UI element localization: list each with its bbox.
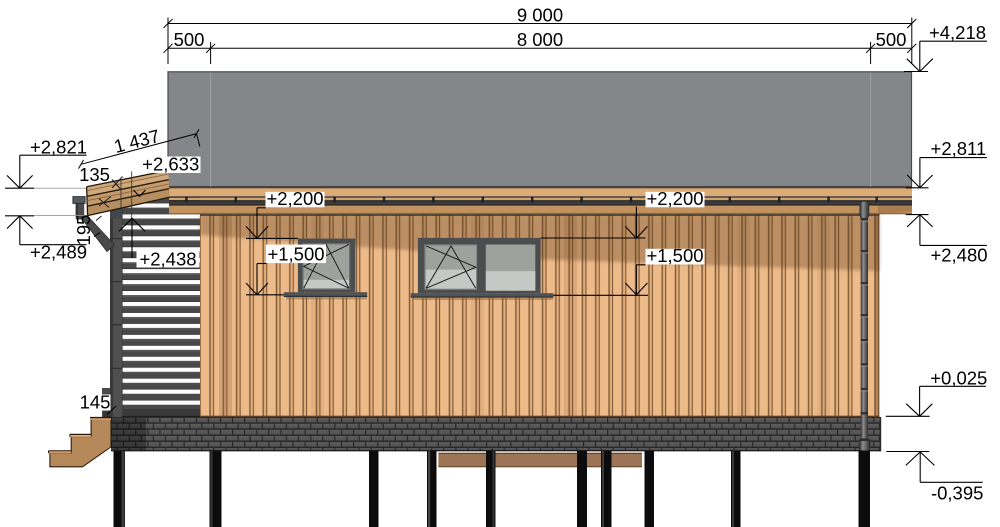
svg-text:8 000: 8 000 xyxy=(517,29,563,50)
svg-text:135: 135 xyxy=(79,164,110,185)
svg-text:145: 145 xyxy=(80,392,111,413)
svg-text:+2,480: +2,480 xyxy=(930,245,987,266)
svg-text:500: 500 xyxy=(876,29,907,50)
svg-text:+2,821: +2,821 xyxy=(30,137,87,158)
svg-text:+4,218: +4,218 xyxy=(929,22,986,43)
svg-text:195: 195 xyxy=(73,215,94,246)
svg-text:+2,811: +2,811 xyxy=(931,138,987,159)
svg-text:+2,200: +2,200 xyxy=(646,188,703,209)
svg-text:1 437: 1 437 xyxy=(112,125,162,157)
svg-text:500: 500 xyxy=(174,29,205,50)
svg-text:+1,500: +1,500 xyxy=(646,245,703,266)
svg-text:+1,500: +1,500 xyxy=(267,244,324,265)
svg-text:+2,633: +2,633 xyxy=(142,154,199,175)
svg-text:+0,025: +0,025 xyxy=(930,368,987,389)
svg-text:9 000: 9 000 xyxy=(517,4,563,25)
svg-text:+2,438: +2,438 xyxy=(139,249,196,270)
svg-text:+2,200: +2,200 xyxy=(266,188,323,209)
svg-text:-0,395: -0,395 xyxy=(931,483,983,504)
